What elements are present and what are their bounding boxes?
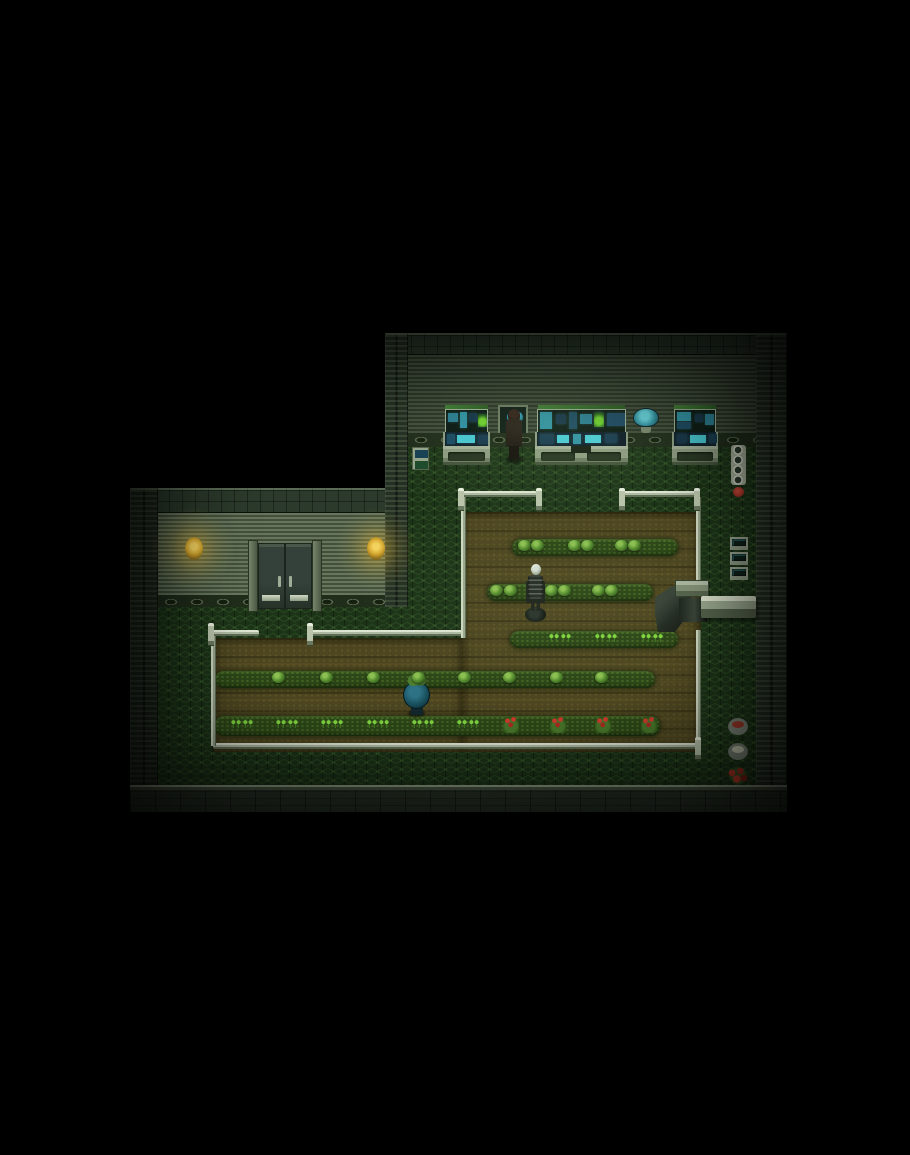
screen bbox=[607, 413, 625, 426]
screen bbox=[478, 435, 488, 444]
robot-head bbox=[531, 564, 541, 575]
screen bbox=[605, 434, 617, 443]
cabbage bbox=[595, 672, 608, 683]
indicator-red-light bbox=[733, 487, 744, 497]
fence-rail-west-lower bbox=[211, 636, 216, 746]
wall-column-center bbox=[385, 333, 408, 607]
door-frame-left bbox=[248, 540, 258, 612]
npc-body bbox=[506, 419, 522, 447]
screen bbox=[540, 412, 552, 429]
door-kickplate-left bbox=[262, 595, 280, 601]
sprout bbox=[287, 719, 299, 728]
screen bbox=[460, 412, 467, 428]
screen bbox=[677, 412, 691, 421]
sprout bbox=[275, 719, 287, 728]
cabbage bbox=[272, 672, 285, 683]
fence-rail-mid-right bbox=[310, 630, 464, 636]
console-base bbox=[535, 446, 628, 465]
sprout bbox=[468, 719, 480, 728]
console-left[interactable] bbox=[443, 405, 490, 465]
screen bbox=[580, 414, 592, 424]
console-screen-panel bbox=[674, 409, 716, 432]
mini-terminal-screen-bottom bbox=[415, 461, 428, 469]
plant-bowl-white[interactable] bbox=[728, 743, 748, 760]
console-right[interactable] bbox=[672, 405, 718, 465]
bowl-contents bbox=[732, 721, 744, 728]
sprout bbox=[366, 719, 378, 728]
wall-bottom bbox=[130, 785, 787, 812]
plant-bowl-red[interactable] bbox=[728, 718, 748, 735]
cabbage bbox=[628, 540, 641, 551]
game-map bbox=[130, 325, 787, 812]
cabbage bbox=[531, 540, 544, 551]
cabbage bbox=[558, 585, 571, 596]
wall-monitor-dome bbox=[633, 408, 659, 427]
red-plant bbox=[595, 716, 611, 733]
screen bbox=[469, 413, 477, 422]
cabbage bbox=[490, 585, 503, 596]
robot-character[interactable] bbox=[524, 561, 547, 623]
sprout bbox=[606, 633, 618, 642]
red-plant bbox=[641, 716, 657, 733]
console-notch bbox=[571, 446, 591, 453]
fence-rail-east-lower bbox=[696, 630, 701, 746]
mini-terminal-screen-top bbox=[415, 450, 428, 458]
sprout bbox=[332, 719, 344, 728]
cabbage bbox=[550, 672, 563, 683]
cabbage bbox=[581, 540, 594, 551]
screen bbox=[573, 434, 581, 444]
screen bbox=[677, 422, 691, 429]
wall-molding-top bbox=[385, 333, 787, 355]
screen bbox=[677, 434, 687, 443]
cabbage bbox=[605, 585, 618, 596]
fence-posts bbox=[536, 488, 542, 510]
console-base bbox=[672, 446, 718, 465]
cabbage bbox=[458, 672, 471, 683]
fence-rail-top-right bbox=[620, 491, 695, 497]
sprout bbox=[320, 719, 332, 728]
console-slot bbox=[587, 452, 621, 461]
red-plant bbox=[550, 716, 566, 733]
wall-column-far-left bbox=[130, 488, 158, 810]
double-door[interactable] bbox=[248, 540, 322, 612]
door-frame-right bbox=[312, 540, 322, 612]
sprout bbox=[594, 633, 606, 642]
sprout bbox=[423, 719, 435, 728]
fence-posts bbox=[458, 488, 464, 510]
screen bbox=[557, 435, 569, 443]
sprout bbox=[640, 633, 652, 642]
wall-column-right bbox=[756, 333, 787, 810]
red-flower-cluster[interactable] bbox=[726, 766, 750, 786]
sprout bbox=[548, 633, 560, 642]
cabbage bbox=[615, 540, 628, 551]
cabbage bbox=[504, 585, 517, 596]
cabbage bbox=[412, 672, 425, 683]
red-plant bbox=[503, 716, 519, 733]
wall-lamp-right bbox=[367, 537, 385, 560]
fence-posts bbox=[208, 623, 214, 645]
console-center[interactable] bbox=[535, 405, 628, 465]
cabbage bbox=[545, 585, 558, 596]
sprout bbox=[242, 719, 254, 728]
bowl-contents bbox=[732, 746, 744, 753]
machine-pipe bbox=[701, 596, 756, 618]
npc-at-console[interactable] bbox=[504, 407, 524, 465]
screen bbox=[540, 434, 554, 444]
fence-posts bbox=[695, 737, 701, 759]
cabbage bbox=[503, 672, 516, 683]
cabbage bbox=[367, 672, 380, 683]
indicator-lamp-stack[interactable] bbox=[731, 445, 746, 497]
monitor-stack[interactable] bbox=[730, 537, 748, 581]
small-monitor bbox=[730, 537, 748, 550]
npc-legs bbox=[509, 446, 519, 459]
door-handle-left bbox=[278, 576, 281, 587]
screen bbox=[585, 435, 601, 443]
machine-top-box bbox=[675, 580, 709, 597]
screen bbox=[705, 414, 714, 425]
small-monitor bbox=[730, 567, 748, 580]
console-base bbox=[443, 446, 490, 465]
console-mid-band bbox=[443, 432, 490, 446]
screen bbox=[569, 412, 577, 429]
fence-rail-bottom bbox=[213, 743, 701, 749]
cabbage bbox=[320, 672, 333, 683]
screen bbox=[448, 413, 458, 422]
console-slot bbox=[677, 452, 713, 461]
robot-torso bbox=[528, 575, 543, 599]
screen bbox=[447, 434, 455, 444]
door-handle-right bbox=[289, 576, 292, 587]
mini-terminal[interactable] bbox=[412, 447, 429, 470]
wall-monitor[interactable] bbox=[632, 408, 660, 433]
sprout bbox=[378, 719, 390, 728]
screen bbox=[709, 434, 717, 443]
screen bbox=[556, 414, 566, 424]
fence-rail-top-left bbox=[463, 491, 537, 497]
cabbage bbox=[568, 540, 581, 551]
indicator-panel bbox=[731, 445, 746, 485]
fence-posts bbox=[619, 488, 625, 510]
fence-rail-mid-left bbox=[210, 630, 259, 636]
small-monitor bbox=[730, 552, 748, 565]
game-viewport[interactable] bbox=[0, 0, 910, 1155]
console-mid-band bbox=[535, 432, 628, 446]
screen bbox=[695, 414, 703, 422]
console-mid-band bbox=[672, 432, 718, 446]
cabbage bbox=[592, 585, 605, 596]
fence-posts bbox=[307, 623, 313, 645]
fence-posts bbox=[694, 488, 700, 510]
screen bbox=[690, 435, 706, 443]
sprout bbox=[560, 633, 572, 642]
sprout bbox=[230, 719, 242, 728]
cabbage bbox=[518, 540, 531, 551]
wall-monitor-stand bbox=[641, 427, 651, 433]
screen bbox=[478, 414, 487, 427]
fence-rail-west-upper bbox=[461, 497, 466, 638]
console-slot bbox=[541, 452, 575, 461]
console-screen-panel bbox=[537, 409, 626, 432]
sprout bbox=[411, 719, 423, 728]
screen bbox=[457, 435, 475, 443]
wall-lamp-left bbox=[185, 537, 203, 560]
door-kickplate-right bbox=[290, 595, 308, 601]
screen bbox=[594, 412, 604, 427]
sprout bbox=[456, 719, 468, 728]
robot-legs bbox=[531, 598, 540, 611]
wall-molding-left bbox=[130, 488, 385, 513]
console-screen-panel bbox=[445, 409, 488, 432]
console-slot bbox=[448, 452, 485, 461]
sprout bbox=[652, 633, 664, 642]
